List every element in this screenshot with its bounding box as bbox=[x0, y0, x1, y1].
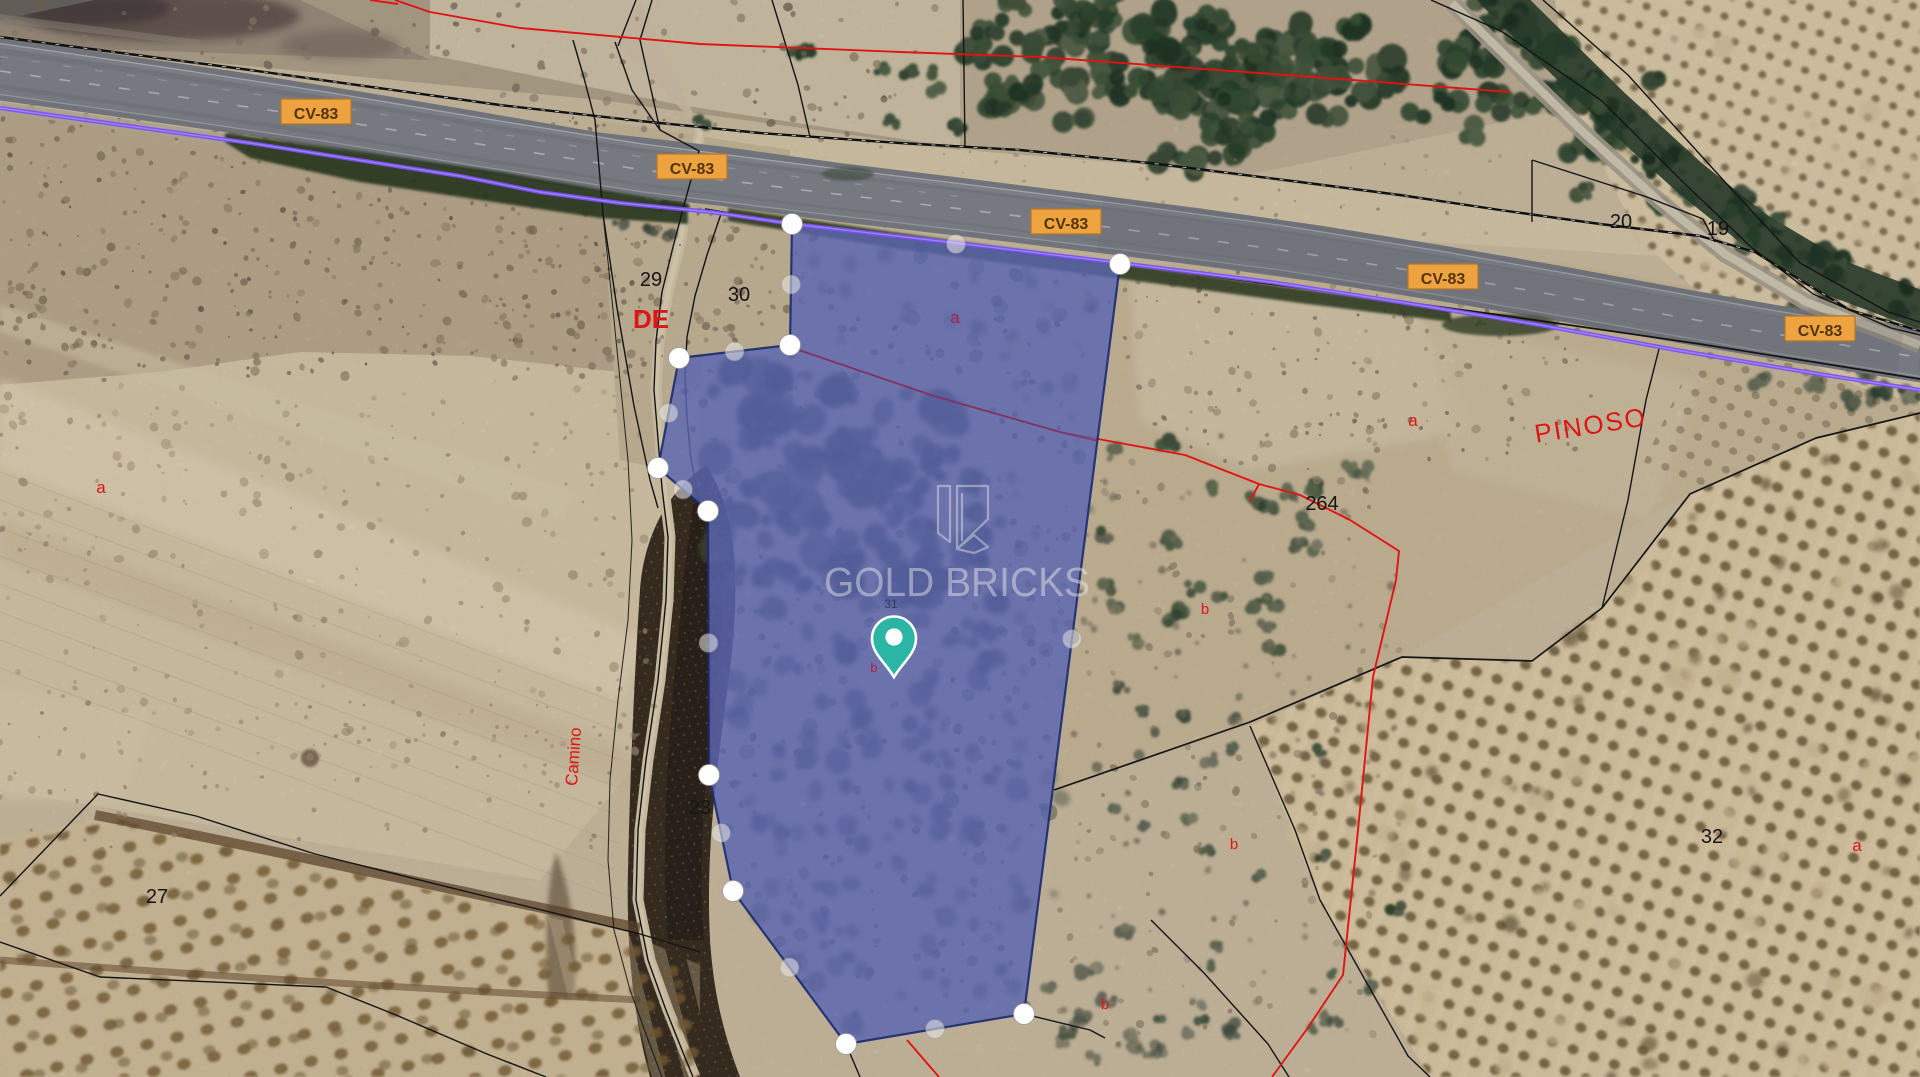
svg-text:23: 23 bbox=[689, 797, 711, 819]
svg-text:CV-83: CV-83 bbox=[1044, 216, 1089, 233]
svg-text:CV-83: CV-83 bbox=[294, 106, 339, 123]
svg-text:CV-83: CV-83 bbox=[670, 161, 715, 178]
svg-text:b: b bbox=[1201, 601, 1209, 618]
svg-text:31: 31 bbox=[884, 597, 898, 611]
svg-text:DE: DE bbox=[633, 304, 669, 334]
svg-text:a: a bbox=[1852, 836, 1862, 855]
svg-text:264: 264 bbox=[1305, 493, 1338, 515]
svg-text:19: 19 bbox=[1707, 218, 1729, 240]
svg-text:a: a bbox=[950, 308, 960, 327]
svg-text:b: b bbox=[1101, 996, 1109, 1013]
svg-text:b: b bbox=[1230, 836, 1238, 853]
svg-text:b: b bbox=[870, 660, 877, 675]
svg-text:GOLD BRICKS: GOLD BRICKS bbox=[824, 559, 1090, 605]
svg-text:27: 27 bbox=[146, 886, 168, 908]
svg-text:CV-83: CV-83 bbox=[1798, 323, 1843, 340]
svg-text:30: 30 bbox=[728, 284, 750, 306]
svg-text:a: a bbox=[96, 478, 106, 497]
svg-text:32: 32 bbox=[1701, 826, 1723, 848]
svg-text:CV-83: CV-83 bbox=[1421, 271, 1466, 288]
svg-text:a: a bbox=[1408, 411, 1418, 430]
svg-text:20: 20 bbox=[1610, 211, 1632, 233]
svg-text:29: 29 bbox=[640, 269, 662, 291]
